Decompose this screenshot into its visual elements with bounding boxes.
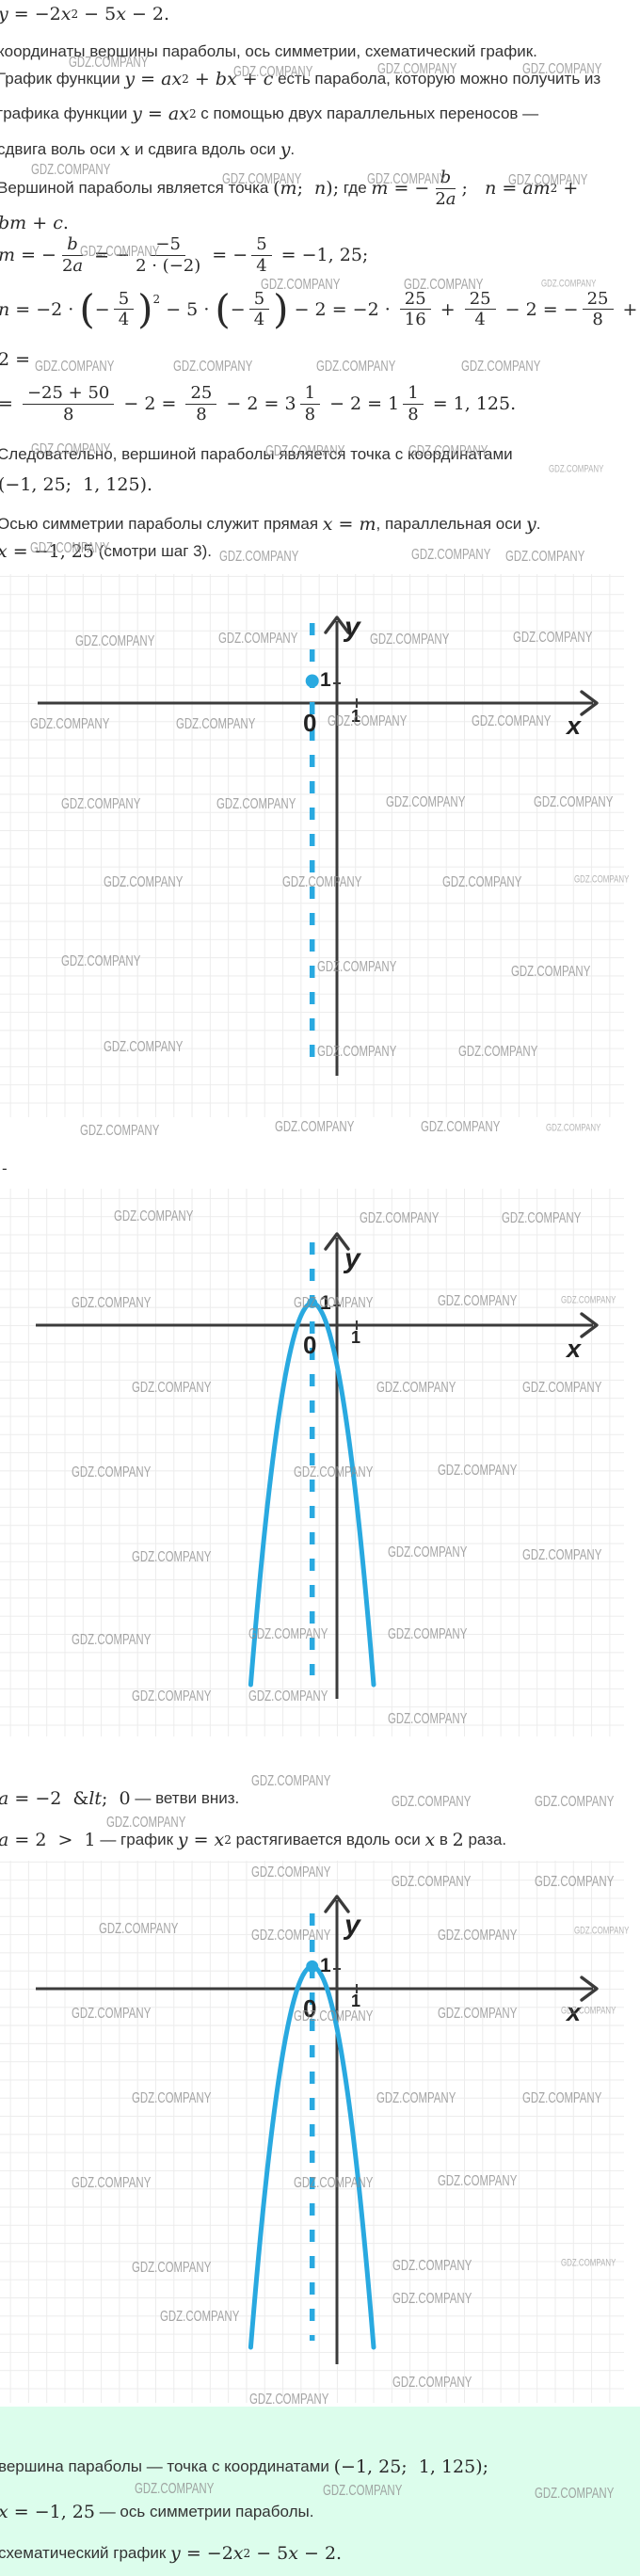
watermark: GDZ.COMPANY — [99, 1920, 178, 1937]
watermark: GDZ.COMPANY — [546, 1122, 600, 1133]
watermark: GDZ.COMPANY — [316, 358, 395, 375]
x-axis-label: x — [567, 712, 581, 741]
watermark: GDZ.COMPANY — [104, 1038, 183, 1055]
watermark: GDZ.COMPANY — [132, 2089, 211, 2106]
watermark: GDZ.COMPANY — [233, 63, 312, 80]
watermark: GDZ.COMPANY — [275, 1118, 354, 1135]
watermark: GDZ.COMPANY — [61, 952, 140, 969]
watermark: GDZ.COMPANY — [561, 1294, 616, 1305]
watermark: GDZ.COMPANY — [522, 2089, 601, 2106]
watermark: GDZ.COMPANY — [392, 2290, 472, 2307]
watermark: GDZ.COMPANY — [513, 629, 592, 646]
watermark: GDZ.COMPANY — [222, 170, 301, 187]
watermark: GDZ.COMPANY — [69, 54, 148, 71]
watermark: GDZ.COMPANY — [522, 1546, 601, 1563]
equation-top: y = −2x2 − 5x − 2. — [0, 4, 169, 24]
origin-label: 0 — [303, 1331, 316, 1360]
watermark: GDZ.COMPANY — [438, 1927, 517, 1944]
y-axis-label: y — [344, 1910, 360, 1942]
watermark: GDZ.COMPANY — [219, 548, 298, 565]
watermark: GDZ.COMPANY — [135, 2480, 214, 2497]
graph-step4-parabola: y x 0 1 1 — [0, 1189, 624, 1736]
watermark: GDZ.COMPANY — [132, 1548, 211, 1565]
watermark: GDZ.COMPANY — [421, 1118, 500, 1135]
watermark: GDZ.COMPANY — [388, 1544, 467, 1560]
answer-symmetry: x = −1, 25 — ось симметрии параболы. — [0, 2502, 313, 2522]
watermark: GDZ.COMPANY — [80, 243, 159, 260]
y-tick-label: 1 — [320, 669, 331, 692]
watermark: GDZ.COMPANY — [251, 1772, 330, 1789]
watermark: GDZ.COMPANY — [30, 715, 109, 732]
watermark: GDZ.COMPANY — [534, 793, 613, 810]
n-calculation-1: n = −2 · (−54)2 − 5 · (−54) − 2 = −2 · 2… — [0, 288, 640, 330]
watermark: GDZ.COMPANY — [317, 958, 396, 975]
watermark: GDZ.COMPANY — [75, 632, 154, 649]
watermark: GDZ.COMPANY — [72, 2174, 151, 2191]
watermark: GDZ.COMPANY — [132, 1688, 211, 1704]
watermark: GDZ.COMPANY — [72, 1631, 151, 1648]
y-axis-label: y — [344, 612, 360, 644]
watermark: GDZ.COMPANY — [249, 2391, 328, 2408]
vertex-point — [306, 1960, 318, 1973]
y-tick-label: 1 — [320, 1955, 331, 1977]
answer-graph: схематический график y = −2x2 − 5x − 2. — [0, 2543, 342, 2564]
answer-vertex: вершина параболы — точка с координатами … — [0, 2456, 488, 2477]
watermark: GDZ.COMPANY — [574, 873, 629, 885]
watermark: GDZ.COMPANY — [508, 171, 587, 188]
graph-step3-axes: y x 0 1 1 — [0, 574, 624, 1117]
watermark: GDZ.COMPANY — [160, 2308, 239, 2325]
watermark: GDZ.COMPANY — [367, 170, 446, 187]
watermark: GDZ.COMPANY — [282, 873, 361, 890]
watermark: GDZ.COMPANY — [438, 1292, 517, 1309]
watermark: GDZ.COMPANY — [541, 278, 596, 289]
watermark: GDZ.COMPANY — [442, 873, 521, 890]
watermark: GDZ.COMPANY — [535, 2485, 614, 2502]
watermark: GDZ.COMPANY — [502, 1209, 581, 1226]
watermark: GDZ.COMPANY — [388, 1625, 467, 1642]
watermark: GDZ.COMPANY — [106, 1814, 185, 1831]
watermark: GDZ.COMPANY — [35, 358, 114, 375]
watermark: GDZ.COMPANY — [522, 60, 601, 77]
theory-line-3: сдвига воль оси x и сдвига вдоль оси y. — [0, 139, 295, 160]
watermark: GDZ.COMPANY — [30, 539, 109, 556]
watermark: GDZ.COMPANY — [328, 712, 407, 729]
watermark: GDZ.COMPANY — [561, 2005, 616, 2016]
watermark: GDZ.COMPANY — [323, 2482, 402, 2499]
symmetry-line-1: Осью симметрии параболы служит прямая x … — [0, 514, 540, 535]
watermark: GDZ.COMPANY — [392, 2257, 472, 2274]
watermark: GDZ.COMPANY — [251, 1927, 330, 1944]
watermark: GDZ.COMPANY — [176, 715, 255, 732]
watermark: GDZ.COMPANY — [218, 630, 297, 647]
watermark: GDZ.COMPANY — [438, 2172, 517, 2189]
watermark: GDZ.COMPANY — [376, 1379, 456, 1396]
watermark: GDZ.COMPANY — [132, 2259, 211, 2276]
n-calculation-3: = −25 + 508 − 2 = 258 − 2 = 318 − 2 = 11… — [0, 383, 516, 424]
watermark: GDZ.COMPANY — [388, 1710, 467, 1727]
watermark: GDZ.COMPANY — [511, 963, 590, 980]
watermark: GDZ.COMPANY — [265, 442, 344, 459]
theory-line-2: графика функции y = ax2 с помощью двух п… — [0, 104, 538, 124]
watermark: GDZ.COMPANY — [114, 1208, 193, 1224]
watermark: GDZ.COMPANY — [261, 276, 340, 293]
branches-note: a = −2 &lt; 0 — ветви вниз. — [0, 1788, 239, 1809]
watermark: GDZ.COMPANY — [472, 712, 551, 729]
watermark: GDZ.COMPANY — [294, 2008, 373, 2024]
watermark: GDZ.COMPANY — [392, 1873, 471, 1890]
watermark: GDZ.COMPANY — [132, 1379, 211, 1396]
n-calculation-2: 2 = — [0, 349, 30, 370]
watermark: GDZ.COMPANY — [72, 1464, 151, 1480]
watermark: GDZ.COMPANY — [505, 548, 584, 565]
watermark: GDZ.COMPANY — [535, 1873, 614, 1890]
origin-label: 0 — [303, 709, 316, 738]
watermark: GDZ.COMPANY — [317, 1043, 396, 1060]
watermark: GDZ.COMPANY — [386, 793, 465, 810]
watermark: GDZ.COMPANY — [404, 276, 483, 293]
conclusion-2: (−1, 25; 1, 125). — [0, 474, 152, 495]
watermark: GDZ.COMPANY — [251, 1864, 330, 1880]
watermark: GDZ.COMPANY — [104, 873, 183, 890]
watermark: GDZ.COMPANY — [216, 795, 296, 812]
watermark: GDZ.COMPANY — [458, 1043, 537, 1060]
watermark: GDZ.COMPANY — [31, 161, 110, 178]
watermark: GDZ.COMPANY — [31, 440, 110, 457]
watermark: GDZ.COMPANY — [561, 2257, 616, 2268]
watermark: GDZ.COMPANY — [461, 358, 540, 375]
watermark: GDZ.COMPANY — [61, 795, 140, 812]
watermark: GDZ.COMPANY — [72, 2005, 151, 2022]
watermark: GDZ.COMPANY — [535, 1793, 614, 1810]
watermark: GDZ.COMPANY — [411, 546, 490, 563]
graph-step4-canvas — [0, 1189, 624, 1736]
watermark: GDZ.COMPANY — [248, 1625, 328, 1642]
watermark: GDZ.COMPANY — [173, 358, 252, 375]
watermark: GDZ.COMPANY — [522, 1379, 601, 1396]
watermark: GDZ.COMPANY — [294, 1294, 373, 1311]
watermark: GDZ.COMPANY — [438, 2005, 517, 2022]
vertex-point — [306, 675, 319, 688]
x-axis-label: x — [567, 1335, 581, 1364]
watermark: GDZ.COMPANY — [408, 442, 488, 459]
watermark: GDZ.COMPANY — [392, 1793, 471, 1810]
y-axis-label: y — [344, 1243, 360, 1275]
vertex-formula-2: bm + c. — [0, 213, 69, 233]
solution-page: y x 0 1 1 y x 0 1 1 — [0, 0, 640, 2576]
m-calculation: m = −b2a = −−52 · (−2) = −54 = −1, 25; — [0, 234, 368, 276]
x-tick-label: 1 — [351, 1328, 360, 1348]
watermark: GDZ.COMPANY — [438, 1462, 517, 1479]
watermark: GDZ.COMPANY — [72, 1294, 151, 1311]
watermark: GDZ.COMPANY — [377, 60, 456, 77]
watermark: GDZ.COMPANY — [248, 1688, 328, 1704]
graph-step3-canvas — [0, 574, 624, 1117]
watermark: GDZ.COMPANY — [376, 2089, 456, 2106]
watermark: GDZ.COMPANY — [574, 1925, 629, 1936]
watermark: GDZ.COMPANY — [549, 463, 603, 474]
stretch-note: a = 2 > 1 — график y = x2 растягивается … — [0, 1830, 506, 1850]
watermark: GDZ.COMPANY — [360, 1209, 439, 1226]
watermark: GDZ.COMPANY — [294, 1464, 373, 1480]
watermark: GDZ.COMPANY — [80, 1122, 159, 1139]
separator-dash: - — [2, 1160, 8, 1178]
watermark: GDZ.COMPANY — [392, 2374, 472, 2391]
watermark: GDZ.COMPANY — [370, 631, 449, 648]
watermark: GDZ.COMPANY — [294, 2174, 373, 2191]
